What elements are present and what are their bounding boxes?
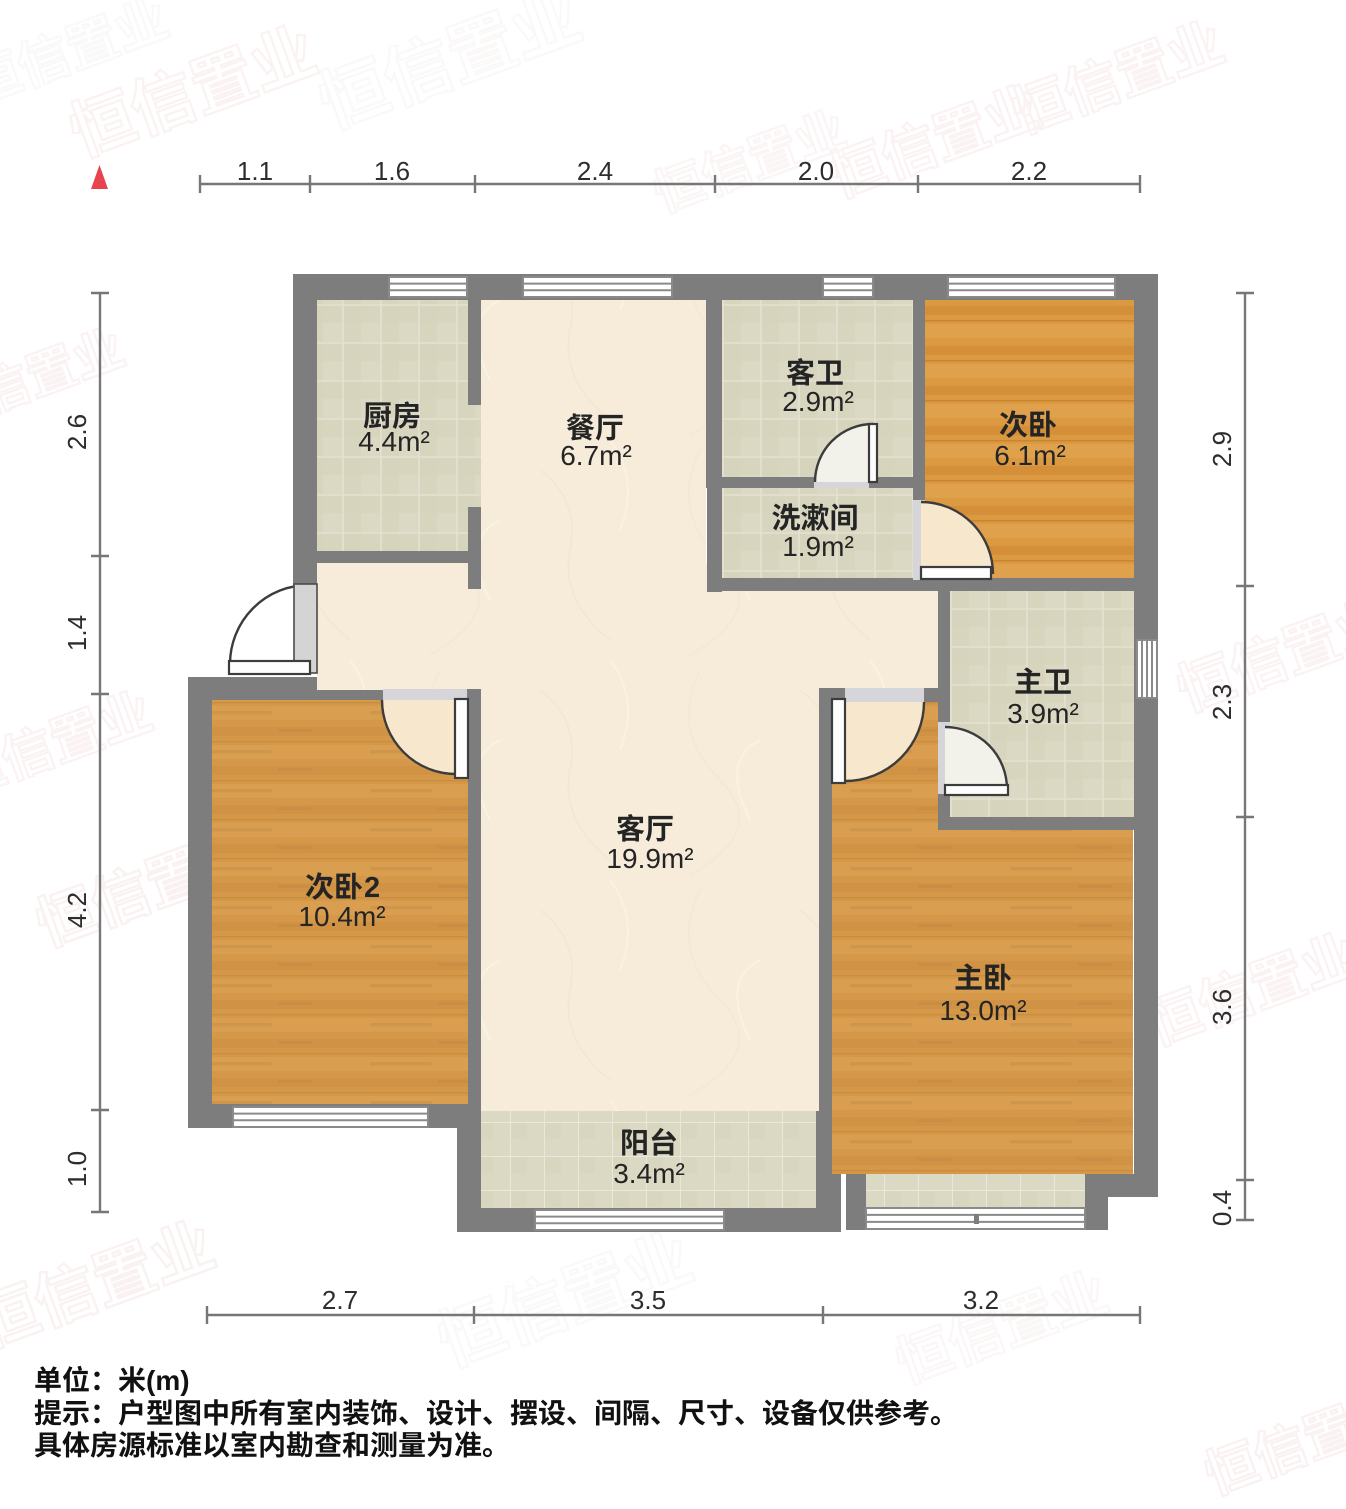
- svg-text:(m): (m): [146, 1365, 190, 1396]
- svg-text:2.0: 2.0: [798, 156, 834, 186]
- svg-text:4.4m²: 4.4m²: [358, 426, 430, 457]
- svg-text:19.9m²: 19.9m²: [606, 843, 693, 874]
- svg-text:3.9m²: 3.9m²: [1007, 698, 1079, 729]
- svg-text:0.4: 0.4: [1207, 1190, 1237, 1226]
- svg-text:2.2: 2.2: [1011, 156, 1047, 186]
- svg-text:2.9m²: 2.9m²: [782, 386, 854, 417]
- svg-text:13.0m²: 13.0m²: [939, 995, 1026, 1026]
- svg-text:6.1m²: 6.1m²: [994, 440, 1066, 471]
- svg-text:3.6: 3.6: [1207, 989, 1237, 1025]
- svg-text:1.1: 1.1: [237, 156, 273, 186]
- svg-text:1.6: 1.6: [374, 156, 410, 186]
- svg-text:1.9m²: 1.9m²: [782, 531, 854, 562]
- svg-text:2: 2: [364, 872, 380, 904]
- svg-text:1.0: 1.0: [62, 1151, 92, 1187]
- svg-text:3.2: 3.2: [963, 1285, 999, 1315]
- svg-text:2.3: 2.3: [1207, 684, 1237, 720]
- svg-text:3.4m²: 3.4m²: [613, 1158, 685, 1189]
- svg-text:2.6: 2.6: [62, 414, 92, 450]
- svg-text:2.4: 2.4: [577, 156, 613, 186]
- svg-text:6.7m²: 6.7m²: [560, 440, 632, 471]
- svg-text:3.5: 3.5: [630, 1285, 666, 1315]
- svg-text:2.7: 2.7: [322, 1285, 358, 1315]
- svg-text:4.2: 4.2: [62, 892, 92, 928]
- svg-text:10.4m²: 10.4m²: [298, 901, 385, 932]
- svg-text:2.9: 2.9: [1207, 431, 1237, 467]
- svg-text:1.4: 1.4: [62, 615, 92, 651]
